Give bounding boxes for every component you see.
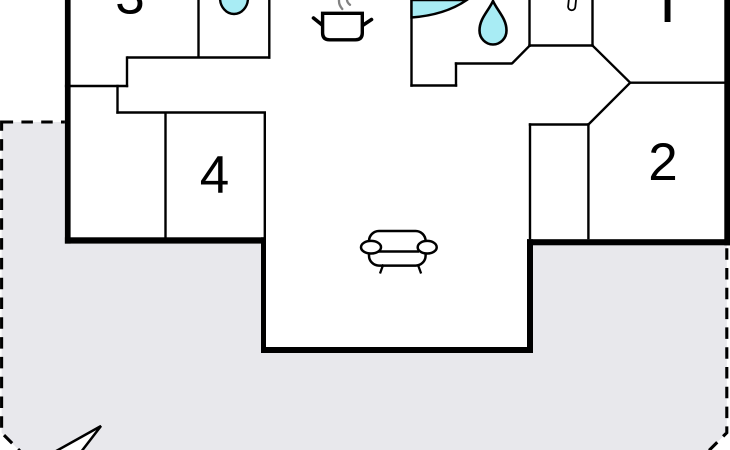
svg-text:2: 2: [648, 133, 677, 192]
svg-text:4: 4: [200, 146, 229, 205]
svg-text:3: 3: [115, 0, 144, 26]
